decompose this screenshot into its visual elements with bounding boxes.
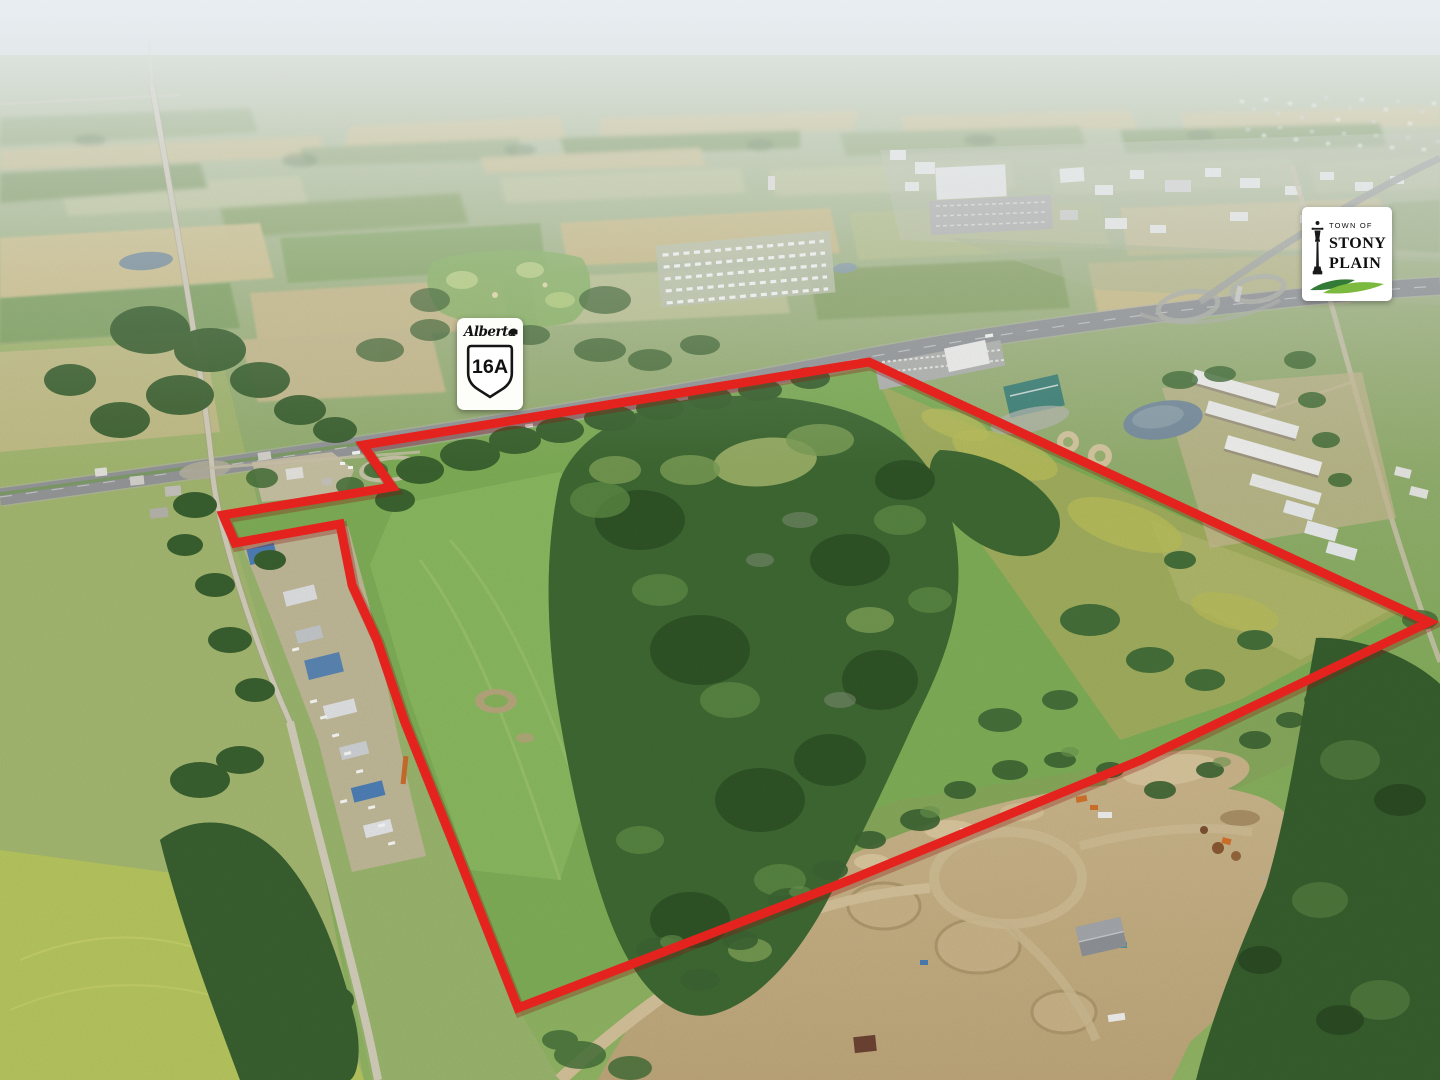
- route-number: 16A: [472, 356, 508, 378]
- distance-haze: [0, 0, 1440, 470]
- route-shield-icon: 16A: [464, 342, 516, 402]
- aerial-map-stage: Alberta 16A TOWN OF STONY PLAIN: [0, 0, 1440, 1080]
- alberta-flag-icon: [510, 329, 518, 336]
- alberta-wordmark: Alberta: [457, 323, 523, 341]
- logo-line-plain: PLAIN: [1329, 254, 1389, 274]
- logo-line-stony: STONY: [1329, 234, 1389, 254]
- lamppost-icon: [1310, 220, 1325, 280]
- logo-line-town-of: TOWN OF: [1329, 221, 1389, 230]
- logo-swoosh-icon: [1309, 275, 1385, 295]
- stony-plain-logo: TOWN OF STONY PLAIN: [1302, 207, 1392, 301]
- highway-16a-shield: Alberta 16A: [457, 318, 523, 410]
- aerial-photo: [0, 0, 1440, 1080]
- alberta-script-label: Alberta: [464, 324, 516, 340]
